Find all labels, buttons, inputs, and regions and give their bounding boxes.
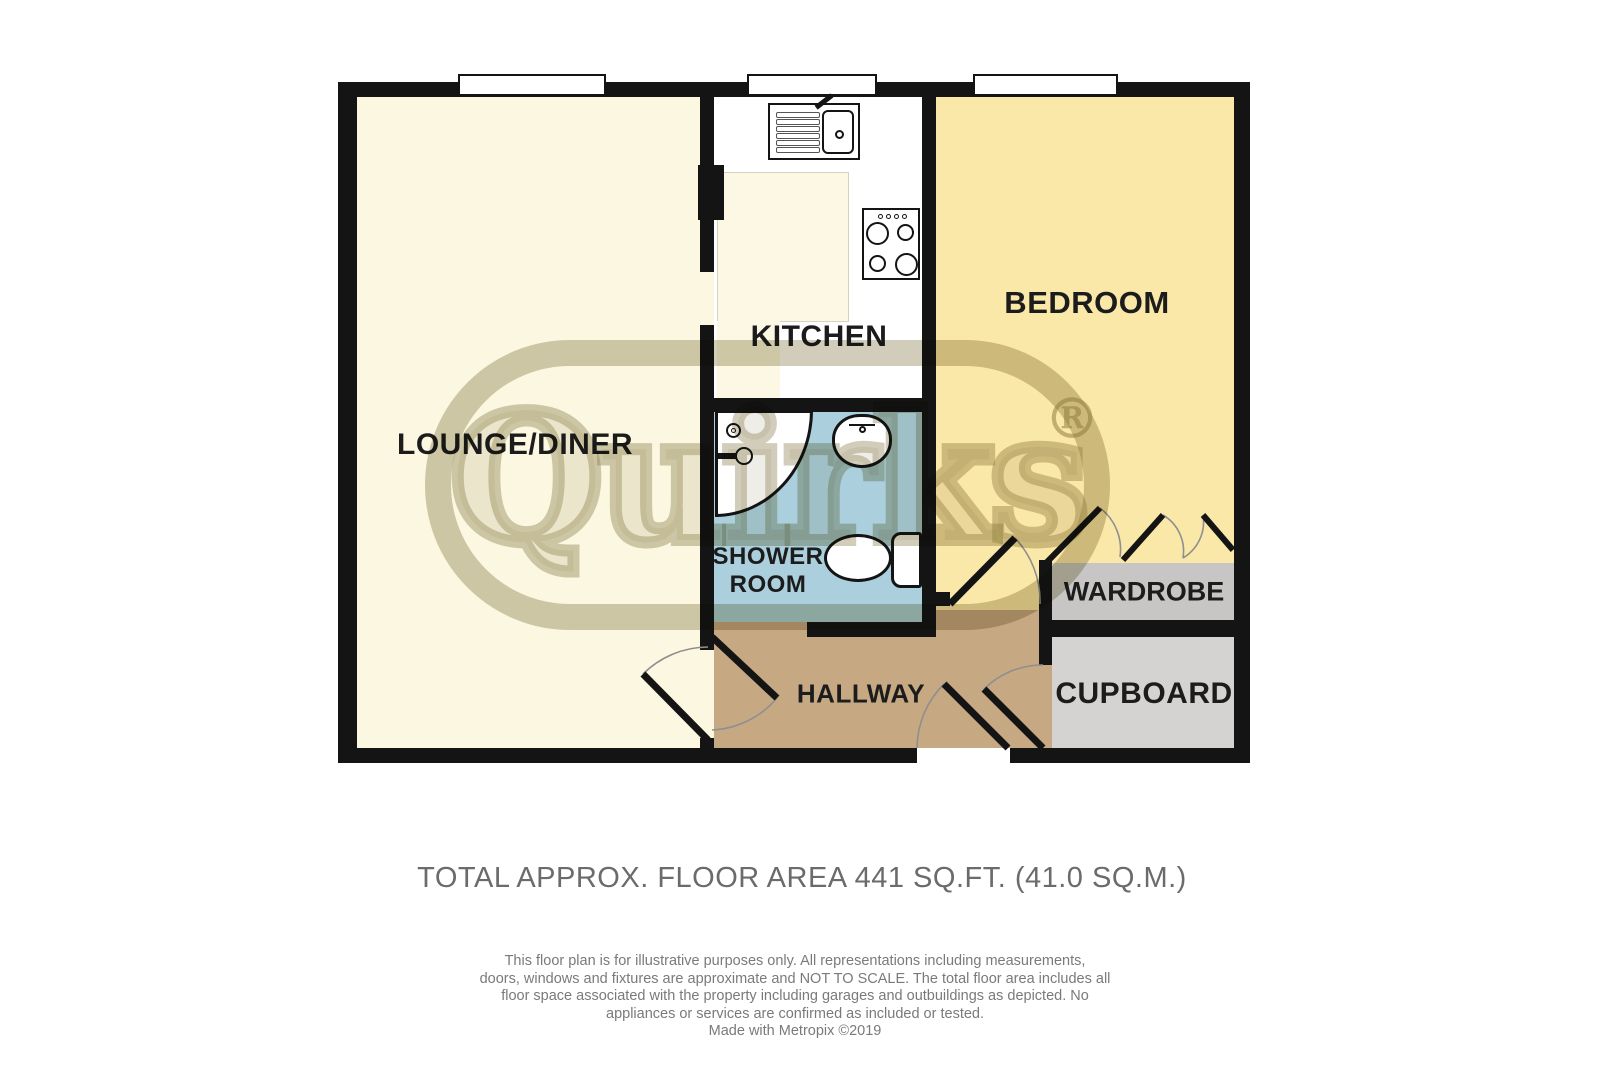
floor-plan: LOUNGE/DINER KITCHEN BEDROOM SHOWER ROOM… (338, 82, 1250, 763)
door-swing-arc (712, 698, 777, 730)
wardrobe-label: WARDROBE (1064, 577, 1225, 608)
door-swing-arc (643, 647, 708, 674)
door-swing-arc (984, 665, 1043, 689)
cupboard-door-leaf (984, 689, 1043, 748)
lounge-door-leaf (643, 674, 708, 740)
kitchen-label: KITCHEN (751, 320, 888, 354)
floorplan-page: LOUNGE/DINER KITCHEN BEDROOM SHOWER ROOM… (0, 0, 1620, 1080)
cupboard-label: CUPBOARD (1055, 677, 1232, 711)
bedroom-label: BEDROOM (1004, 285, 1169, 321)
lounge-label: LOUNGE/DINER (397, 428, 633, 462)
door-swing-arc (1015, 538, 1040, 604)
bifold-door-panel (1047, 508, 1100, 562)
bedroom-door-leaf (950, 538, 1015, 604)
bifold-door-panel (1123, 515, 1163, 560)
disclaimer-line: This floor plan is for illustrative purp… (480, 953, 1111, 971)
shower-door-leaf (712, 637, 777, 698)
bifold-swing-arc (1100, 508, 1121, 557)
disclaimer-line: appliances or services are confirmed as … (480, 1006, 1111, 1024)
bifold-swing-arc (1183, 515, 1204, 558)
disclaimer-line: doors, windows and fixtures are approxim… (480, 971, 1111, 989)
doors-overlay (338, 82, 1250, 763)
bifold-door-panel (1203, 515, 1233, 550)
hallway-label: HALLWAY (797, 679, 925, 710)
shower-room-label: SHOWER ROOM (713, 543, 824, 599)
entrance-door-leaf (944, 684, 1008, 748)
disclaimer-text: This floor plan is for illustrative purp… (480, 953, 1111, 1041)
bifold-swing-arc (1163, 515, 1184, 558)
disclaimer-line: floor space associated with the property… (480, 988, 1111, 1006)
total-floor-area-text: TOTAL APPROX. FLOOR AREA 441 SQ.FT. (41.… (417, 862, 1187, 895)
metropix-credit: Made with Metropix ©2019 (480, 1023, 1111, 1041)
